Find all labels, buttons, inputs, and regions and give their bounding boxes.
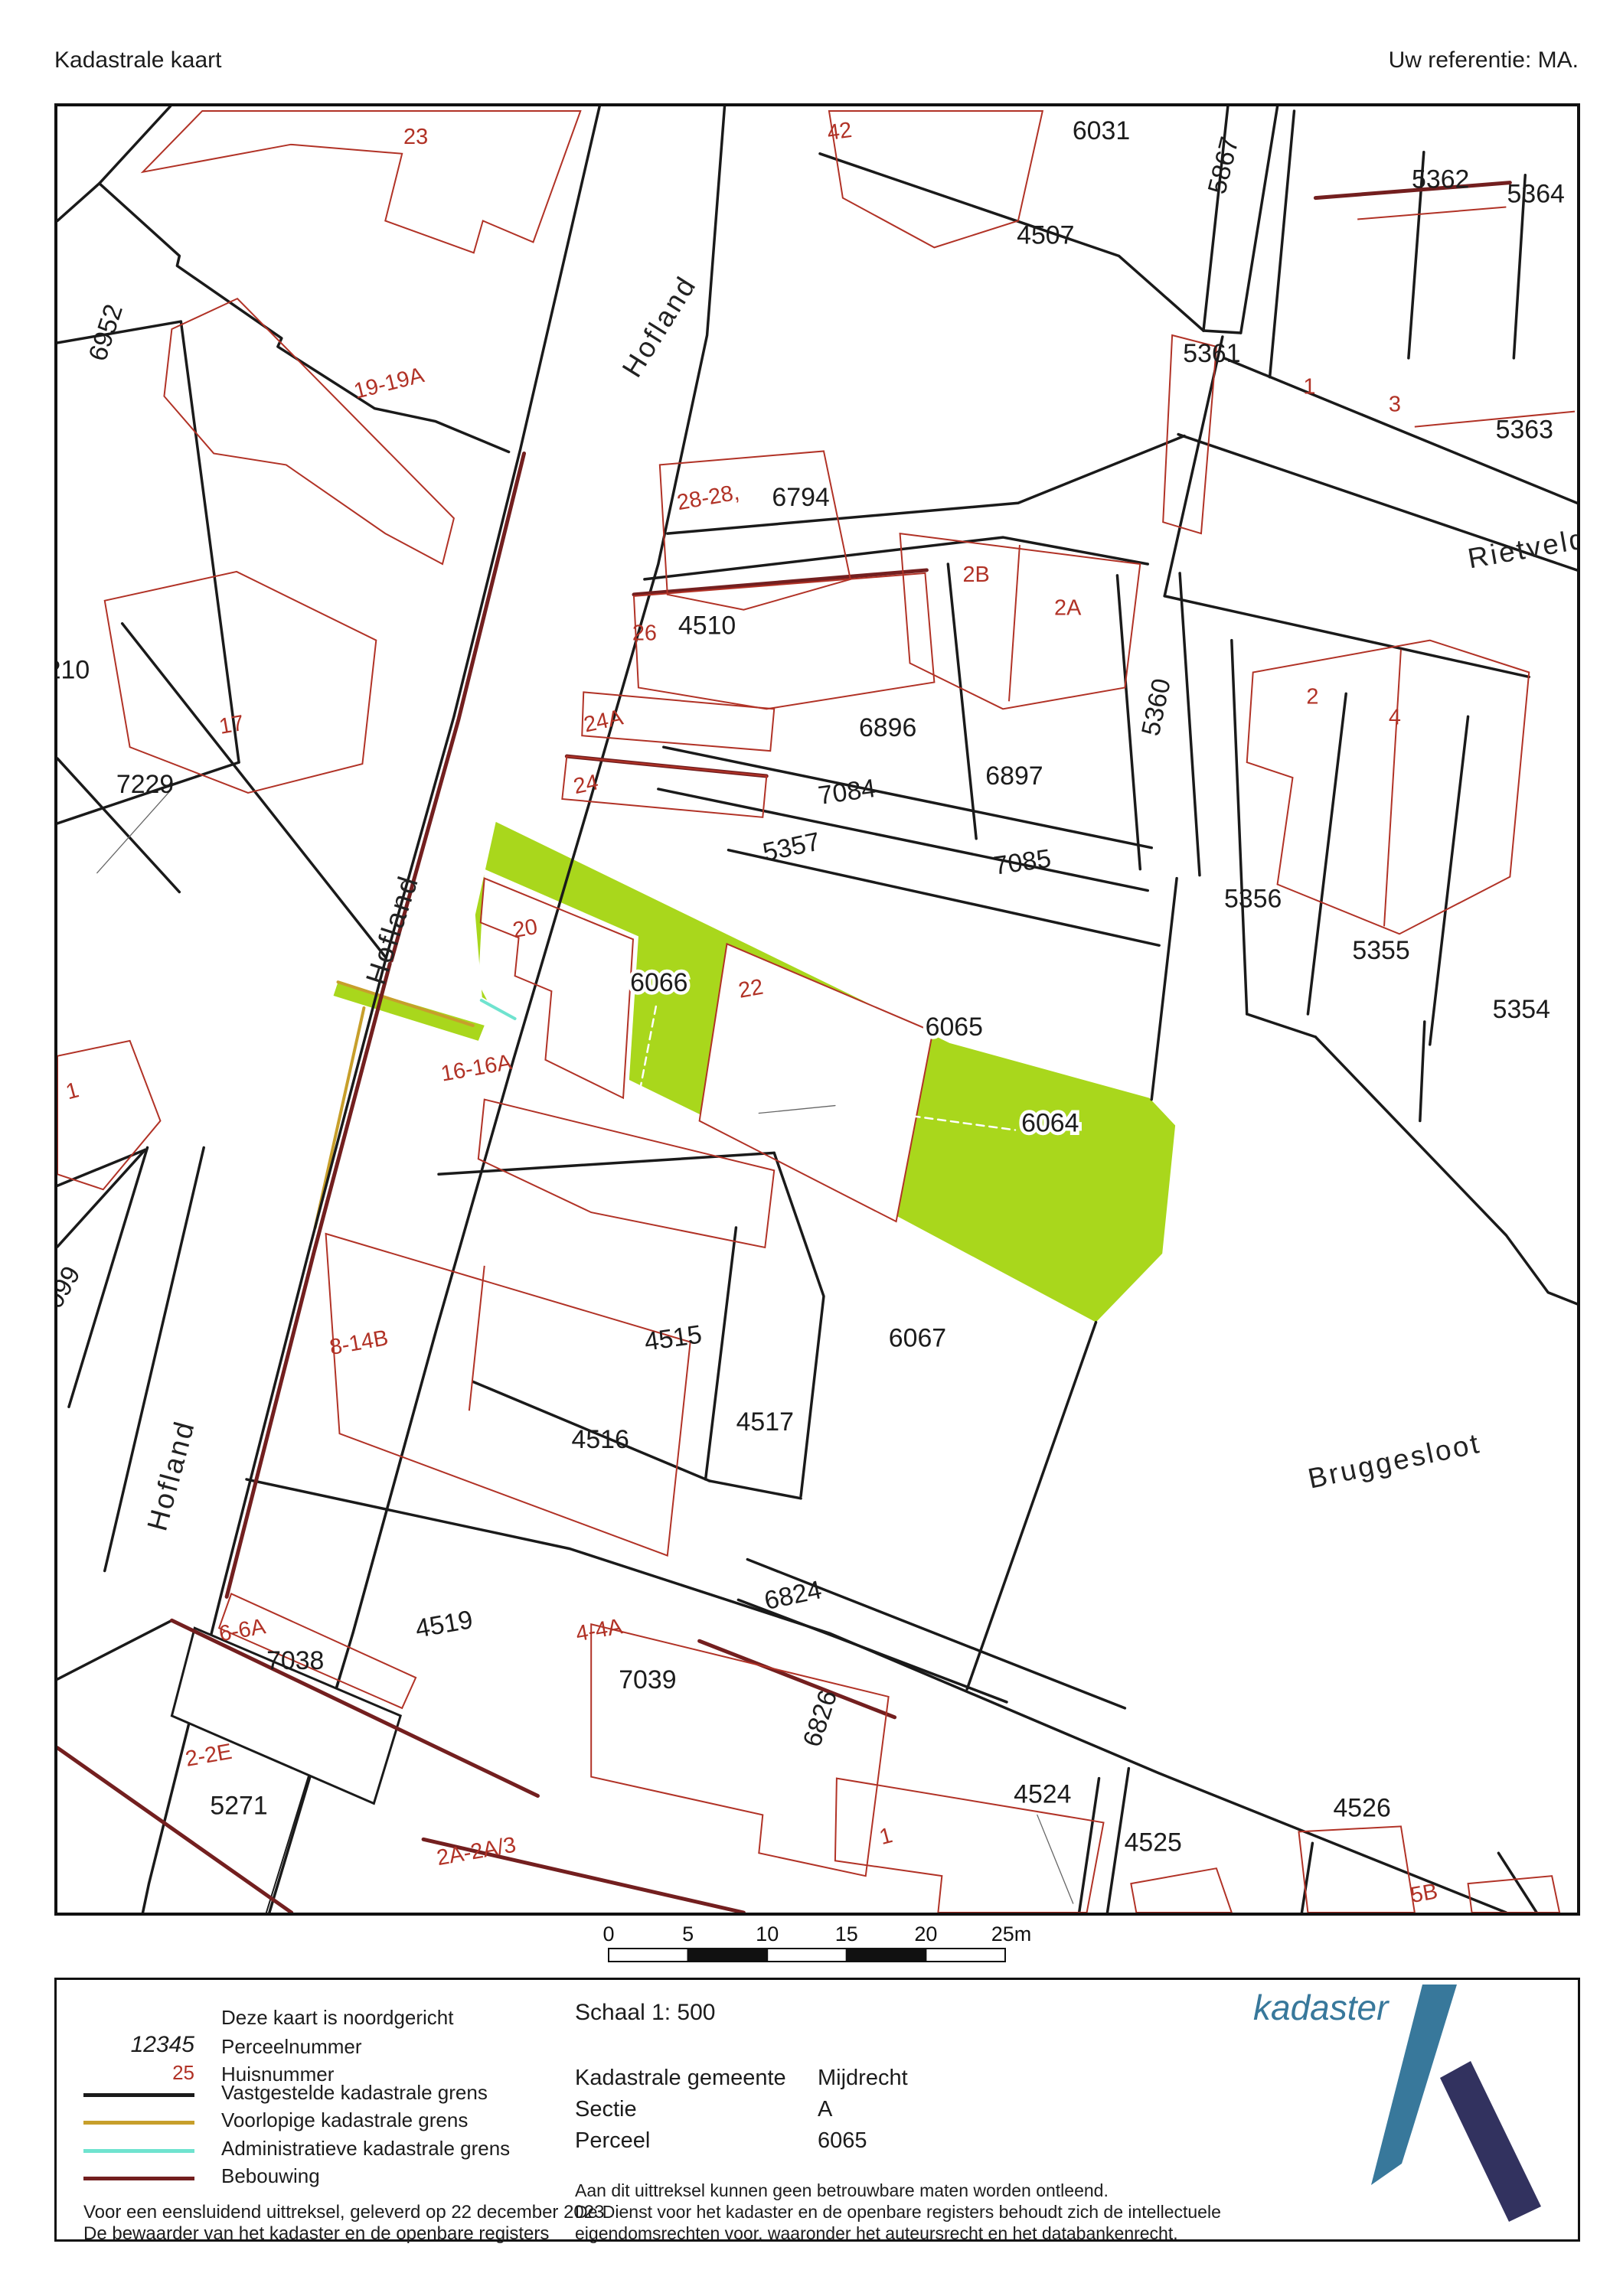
parcel-number-label: 6896 bbox=[859, 713, 916, 742]
house-number-label: 5B bbox=[1409, 1879, 1439, 1908]
parcel-number-label: 4517 bbox=[736, 1407, 794, 1437]
parcel-number-label: 6066 bbox=[630, 968, 687, 997]
info-value: A bbox=[818, 2097, 832, 2122]
cadastral-boundary-line bbox=[247, 1479, 830, 1633]
parcel-number-label: 7038 bbox=[266, 1646, 324, 1675]
cadastral-boundary-line bbox=[738, 1600, 1007, 1702]
building-outline bbox=[105, 572, 377, 793]
label-leader-line bbox=[97, 789, 172, 873]
street-name-label: Bruggesloot bbox=[1305, 1427, 1484, 1495]
house-number-label: 16-16A bbox=[439, 1050, 514, 1087]
building-outline bbox=[829, 111, 1043, 247]
parcel-number-label: 4525 bbox=[1125, 1828, 1182, 1857]
legend-line-label: Bebouwing bbox=[221, 2164, 320, 2188]
parcel-number-label: 5867 bbox=[1203, 134, 1245, 197]
building-outline bbox=[1384, 650, 1401, 927]
house-number-label: 17 bbox=[217, 711, 246, 739]
scale-bar-segment bbox=[926, 1949, 1005, 1962]
house-number-label: 1 bbox=[64, 1078, 82, 1104]
scale-tick-label: 20 bbox=[914, 1923, 937, 1945]
house-number-label: 3 bbox=[1389, 393, 1401, 417]
legend-panel: Deze kaart is noordgericht 12345 Perceel… bbox=[54, 1978, 1580, 2242]
cadastral-boundary-line bbox=[1241, 106, 1278, 333]
disclaimer-line-1: Aan dit uittreksel kunnen geen betrouwba… bbox=[575, 2180, 1109, 2201]
house-number-label: 26 bbox=[632, 621, 657, 646]
scale-tick-label: 10 bbox=[756, 1923, 779, 1945]
building-outline bbox=[1468, 1876, 1560, 1913]
street-name-label: Rietveld bbox=[1465, 523, 1577, 575]
house-number-label: 20 bbox=[511, 915, 539, 943]
cadastral-boundary-line bbox=[1498, 1853, 1536, 1913]
cadastral-boundary-line bbox=[1079, 1779, 1099, 1913]
scale-tick-label: 15 bbox=[835, 1923, 858, 1945]
building-outline bbox=[634, 573, 934, 709]
parcel-number-label: 6065 bbox=[926, 1013, 983, 1042]
cadastral-boundary-line bbox=[1232, 641, 1247, 1014]
legend-line-sample bbox=[83, 2093, 194, 2097]
parcel-number-label: 6794 bbox=[772, 483, 829, 512]
scale-bar-segment bbox=[847, 1949, 926, 1962]
provisional-boundary-line bbox=[338, 982, 473, 1026]
logo-bar-shape bbox=[1440, 2061, 1541, 2222]
house-number-symbol: 25 bbox=[72, 2061, 194, 2085]
house-number-label: 23 bbox=[403, 125, 428, 149]
cadastral-boundary-line bbox=[1270, 111, 1295, 377]
house-number-label: 1 bbox=[877, 1823, 895, 1850]
house-number-label: 6-6A bbox=[217, 1614, 268, 1646]
parcel-number-label: 6031 bbox=[1073, 116, 1130, 145]
built-boundary-line bbox=[57, 1748, 292, 1913]
house-number-label: 2A bbox=[1054, 596, 1082, 621]
cadastral-boundary-line bbox=[1247, 1014, 1316, 1037]
cadastral-boundary-line bbox=[1117, 576, 1140, 869]
parcel-number-label: 4526 bbox=[1333, 1793, 1390, 1822]
cadastral-boundary-line bbox=[820, 154, 1203, 331]
street-name-label: Hofland bbox=[141, 1417, 201, 1534]
highlighted-parcel[interactable] bbox=[334, 982, 485, 1041]
footer-line-1: Voor een eensluidend uittreksel, gelever… bbox=[83, 2202, 604, 2223]
built-boundary-line bbox=[700, 1641, 895, 1717]
building-outline bbox=[1009, 545, 1020, 701]
cadastral-boundary-line bbox=[658, 789, 1148, 891]
cadastral-boundary-line bbox=[57, 321, 239, 762]
cadastral-boundary-line bbox=[1164, 596, 1529, 677]
cadastral-boundary-line bbox=[57, 106, 170, 220]
house-number-label: 2 bbox=[1306, 684, 1318, 709]
house-number-label: 24A bbox=[582, 705, 626, 737]
parcel-number-label: 7085 bbox=[991, 844, 1053, 881]
building-outline bbox=[900, 533, 1141, 709]
scale-bar-segment bbox=[609, 1949, 688, 1962]
cadastral-boundary-line bbox=[57, 1620, 171, 1679]
info-key: Kadastrale gemeente bbox=[575, 2066, 786, 2091]
parcel-number-label: 6897 bbox=[985, 762, 1043, 791]
cadastral-boundary-line bbox=[664, 747, 1151, 848]
house-number-label: 2A-2A/3 bbox=[435, 1833, 518, 1871]
street-name-label: Hofland bbox=[360, 871, 425, 988]
scale-end-label: 25m bbox=[991, 1923, 1032, 1945]
map-canvas: 234260315867536253644507695219-19AHoflan… bbox=[57, 106, 1577, 1913]
cadastral-boundary-line bbox=[1203, 331, 1241, 333]
cadastral-map[interactable]: 234260315867536253644507695219-19AHoflan… bbox=[54, 103, 1580, 1916]
parcel-number-label: 4510 bbox=[678, 612, 736, 641]
parcel-number-label: 7039 bbox=[619, 1665, 676, 1694]
disclaimer-line-2: De Dienst voor het kadaster en de openba… bbox=[575, 2202, 1221, 2223]
parcel-number-label: 5364 bbox=[1507, 180, 1565, 209]
north-note: Deze kaart is noordgericht bbox=[221, 2006, 453, 2030]
parcel-number-label: 5356 bbox=[1224, 884, 1282, 913]
legend-line-label: Administratieve kadastrale grens bbox=[221, 2137, 510, 2161]
cadastral-boundary-line bbox=[668, 436, 1184, 534]
house-number-label: 22 bbox=[736, 975, 765, 1003]
disclaimer-line-3: eigendomsrechten voor, waaronder het aut… bbox=[575, 2223, 1178, 2244]
parcel-number-label: 5362 bbox=[1412, 165, 1469, 194]
cadastral-boundary-line bbox=[948, 564, 976, 839]
scale-bar-segment bbox=[767, 1949, 847, 1962]
parcel-number-label: 6064 bbox=[1021, 1108, 1079, 1137]
built-boundary-line bbox=[227, 964, 390, 1596]
info-value: Mijdrecht bbox=[818, 2066, 908, 2091]
parcel-number-label: 4507 bbox=[1017, 220, 1074, 249]
scale-tick-label: 0 bbox=[603, 1923, 614, 1945]
parcel-number-label: 5357 bbox=[760, 827, 823, 867]
parcel-number-label: 7229 bbox=[116, 770, 174, 799]
building-outline bbox=[469, 1266, 485, 1411]
cadastral-boundary-line bbox=[706, 1228, 736, 1479]
cadastral-boundary-line bbox=[774, 1153, 824, 1495]
info-key: Sectie bbox=[575, 2097, 637, 2122]
parcel-number-symbol: 12345 bbox=[72, 2032, 194, 2058]
building-outline bbox=[591, 1624, 888, 1876]
page-title: Kadastrale kaart bbox=[54, 47, 221, 73]
cadastral-boundary-line bbox=[728, 850, 1159, 946]
house-number-label: 4 bbox=[1389, 705, 1401, 729]
parcel-number-label: 5363 bbox=[1496, 416, 1553, 445]
parcel-number-label: 6067 bbox=[889, 1323, 946, 1352]
footer-line-2: De bewaarder van het kadaster en de open… bbox=[83, 2223, 549, 2245]
house-number-label: 4-4A bbox=[574, 1614, 625, 1646]
parcel-number-label: 4516 bbox=[571, 1425, 629, 1454]
house-number-label: 2-2E bbox=[184, 1740, 234, 1772]
legend-line-sample bbox=[83, 2149, 194, 2153]
info-key: Perceel bbox=[575, 2128, 650, 2154]
label-leader-line bbox=[1037, 1815, 1073, 1903]
building-outline bbox=[1247, 641, 1530, 934]
parcel-number-label: 6826 bbox=[798, 1687, 843, 1750]
parcel-number-label: 5360 bbox=[1136, 676, 1177, 739]
cadastral-boundary-line bbox=[1430, 716, 1468, 1045]
parcel-number-label: 5354 bbox=[1493, 995, 1550, 1024]
parcel-number-label: 4524 bbox=[1014, 1779, 1071, 1808]
cadastral-boundary-line bbox=[100, 184, 509, 452]
building-outline bbox=[143, 111, 581, 253]
house-number-label: 42 bbox=[825, 118, 853, 145]
legend-line-sample bbox=[83, 2121, 194, 2125]
info-value: 6065 bbox=[818, 2128, 867, 2154]
scale-bar-segment bbox=[688, 1949, 768, 1962]
cadastral-boundary-line bbox=[710, 1481, 802, 1499]
cadastral-boundary-line bbox=[1151, 879, 1177, 1100]
legend-line-label: Vastgestelde kadastrale grens bbox=[221, 2081, 488, 2105]
parcel-number-label: 5355 bbox=[1352, 936, 1409, 965]
cadastral-boundary-line bbox=[1315, 1037, 1577, 1304]
parcel-number-label: 6824 bbox=[762, 1575, 825, 1616]
building-outline bbox=[1131, 1868, 1231, 1913]
parcel-number-label: 5361 bbox=[1183, 339, 1240, 368]
building-outline bbox=[57, 1041, 160, 1189]
house-number-label: 1 bbox=[1303, 375, 1315, 400]
kadaster-logo: kadaster bbox=[1227, 1980, 1580, 2239]
parcel-number-label: 5271 bbox=[210, 1791, 267, 1820]
cadastral-boundary-line bbox=[1308, 693, 1346, 1014]
kadaster-wordmark: kadaster bbox=[1253, 1988, 1390, 2027]
parcel-number-label: 6099 bbox=[57, 1261, 87, 1326]
parcel-number-label: 4515 bbox=[642, 1320, 704, 1357]
house-number-label: 2B bbox=[963, 563, 990, 587]
legend-line-sample bbox=[83, 2177, 194, 2180]
legend-line-label: Voorlopige kadastrale grens bbox=[221, 2108, 468, 2132]
parcel-number-label: 4519 bbox=[413, 1605, 475, 1644]
parcel-number-label: Perceelnummer bbox=[221, 2035, 362, 2059]
reference-label: Uw referentie: MA. bbox=[1389, 47, 1579, 73]
street-name-label: Hofland bbox=[616, 270, 703, 383]
scale-bar: 0510152025m bbox=[597, 1923, 1072, 1976]
built-boundary-line bbox=[634, 570, 926, 595]
cadastral-boundary-line bbox=[1180, 573, 1200, 876]
house-number-label: 24 bbox=[571, 770, 600, 799]
cadastral-boundary-line bbox=[1420, 1022, 1425, 1121]
house-number-label: 28-28, bbox=[675, 480, 741, 515]
parcel-number-label: 210 bbox=[57, 655, 90, 684]
building-outline bbox=[1357, 207, 1506, 220]
house-number-label: 19-19A bbox=[351, 363, 427, 404]
cadastral-boundary-line bbox=[830, 1633, 1506, 1913]
scale-text: Schaal 1: 500 bbox=[575, 2000, 715, 2026]
scale-tick-label: 5 bbox=[682, 1923, 694, 1945]
house-number-label: 8-14B bbox=[328, 1326, 390, 1360]
cadastral-boundary-line bbox=[967, 1322, 1096, 1689]
